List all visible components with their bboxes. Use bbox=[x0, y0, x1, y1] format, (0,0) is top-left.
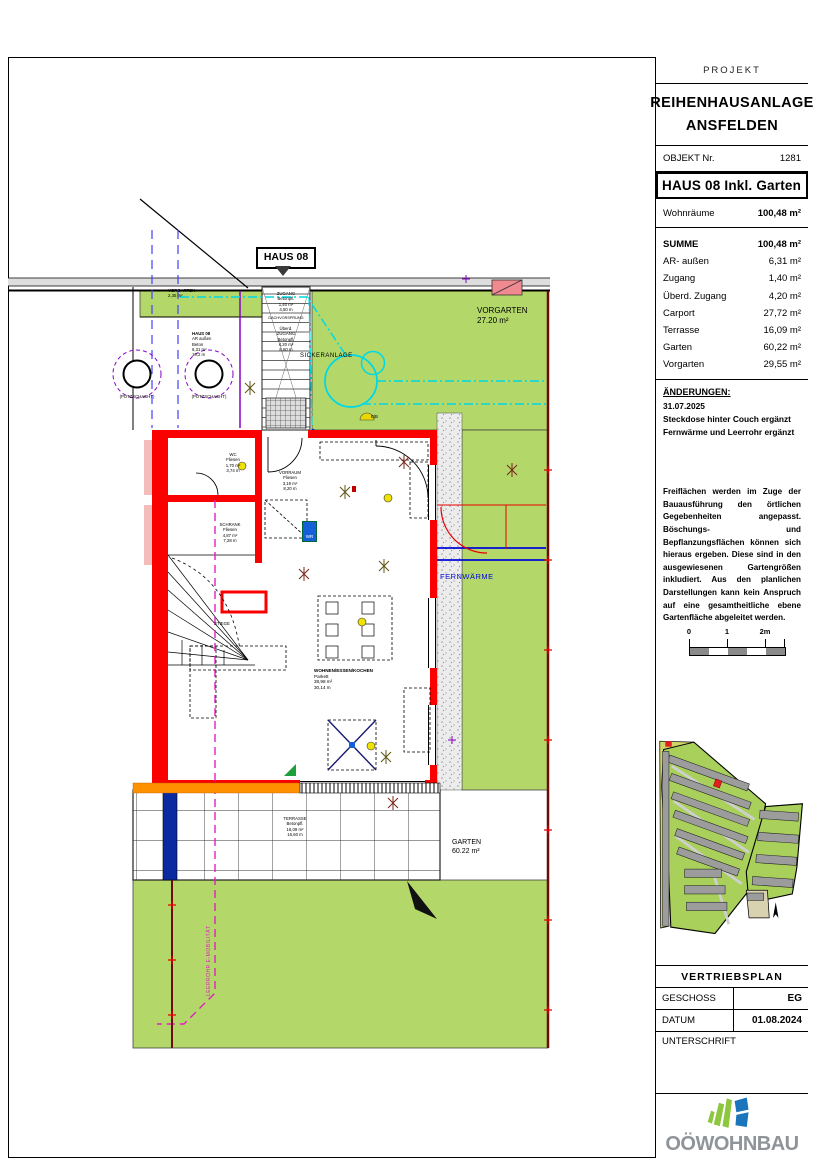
stiege-label: STIEGE bbox=[214, 621, 230, 626]
aenderungen-block: ÄNDERUNGEN: 31.07.2025 Steckdose hinter … bbox=[656, 380, 808, 480]
unterschrift-box: UNTERSCHRIFT bbox=[656, 1032, 808, 1094]
project-name-line1: REIHENHAUSANLAGE bbox=[650, 92, 814, 114]
wohnraeume-label: Wohnräume bbox=[663, 208, 715, 219]
logo-text: OÖWOHNBAU bbox=[665, 1134, 798, 1154]
vorgarten-big-label: VORGARTEN 27.20 m² bbox=[477, 306, 528, 327]
zugang-label: ZUGANG Betonpfl. 1,40 m² 4,50 m bbox=[277, 291, 295, 312]
wr-box: WR bbox=[302, 521, 317, 542]
terrasse-label: TERRASSE Betonpfl. 16,09 m² 16,60 m bbox=[283, 816, 306, 837]
geschoss-row: GESCHOSS EG bbox=[656, 988, 808, 1010]
sickeranlage-label: SICKERANLAGE bbox=[300, 353, 353, 361]
aenderungen-line: Steckdose hinter Couch ergänzt bbox=[663, 413, 801, 426]
gravel-strip bbox=[437, 413, 462, 790]
vorraum-room-label: VORRAUM Fliesen 3,19 m² 8,20 m bbox=[279, 470, 301, 491]
ueberd-zugang-label: Überd. ZUGANG Betonpfl. 4,20 m² 8,60 m bbox=[277, 326, 295, 353]
objekt-value: 1281 bbox=[780, 153, 801, 164]
objekt-row: OBJEKT Nr. 1281 bbox=[656, 146, 808, 172]
logo-mark-icon bbox=[705, 1094, 759, 1134]
site-map-drawing bbox=[657, 724, 807, 959]
fernwaerme-label: FERNWÄRME bbox=[440, 572, 494, 581]
haus-title-box: HAUS 08 Inkl. Garten bbox=[656, 172, 808, 199]
title-block-panel: PROJEKT REIHENHAUSANLAGE ANSFELDEN OBJEK… bbox=[655, 57, 808, 1158]
garten-label: GARTEN 60.22 m² bbox=[452, 838, 481, 857]
site-map-north-arrow-icon bbox=[773, 902, 779, 918]
wohnen-room-label: WOHNEN/ESSEN/KOCHEN Parkett 38,98 m² 30,… bbox=[314, 668, 373, 691]
scale-label-0: 0 bbox=[687, 627, 691, 636]
aenderungen-date: 31.07.2025 bbox=[663, 400, 801, 413]
disclaimer-text: Freiflächen werden im Zuge der Bauausfüh… bbox=[656, 482, 808, 622]
project-name-box: REIHENHAUSANLAGE ANSFELDEN bbox=[656, 84, 808, 146]
facade-strips bbox=[133, 783, 440, 793]
floorplan-drawing bbox=[8, 57, 655, 1160]
wc-room-label: WC Fliesen 1,70 m² 3,74 m bbox=[226, 452, 241, 473]
scale-label-2m: 2m bbox=[760, 627, 771, 636]
aenderungen-heading: ÄNDERUNGEN: bbox=[663, 386, 801, 400]
summe-row: SUMME100,48 m² bbox=[663, 236, 801, 253]
putzschacht-left-label: (PUTZSCHACHT) bbox=[120, 394, 155, 399]
company-logo: OÖWOHNBAU bbox=[656, 1094, 808, 1156]
objekt-label: OBJEKT Nr. bbox=[663, 153, 715, 164]
summe-row: Garten60,22 m² bbox=[663, 339, 801, 356]
site-map bbox=[656, 717, 808, 965]
wohnraeume-row: Wohnräume 100,48 m² bbox=[656, 199, 808, 228]
projekt-header: PROJEKT bbox=[656, 57, 808, 84]
scale-bar: 0 1 2m bbox=[656, 625, 808, 670]
vertriebsplan-box: VERTRIEBSPLAN bbox=[656, 965, 808, 988]
bb-mark: B|B bbox=[371, 414, 378, 419]
summe-row: Überd. Zugang4,20 m² bbox=[663, 288, 801, 305]
datum-value: 01.08.2024 bbox=[734, 1010, 808, 1031]
vertriebsplan-label: VERTRIEBSPLAN bbox=[681, 971, 783, 983]
unterschrift-label: UNTERSCHRIFT bbox=[662, 1036, 736, 1047]
site-map-highlight-small bbox=[665, 741, 671, 747]
haus-08-tag-arrow-icon bbox=[275, 266, 291, 276]
vorgarten-small-label: VORGARTEN 2,35 m² bbox=[168, 288, 195, 299]
schrank-room-label: SCHRANK Fliesen 4,87 m² 7,28 m bbox=[219, 522, 240, 543]
datum-row: DATUM 01.08.2024 bbox=[656, 1010, 808, 1032]
utility-box bbox=[492, 280, 522, 295]
ar-aussen-label: HAUS 08 AR außen Beton 6,31 m² 10,2 m bbox=[192, 331, 211, 358]
scale-label-1: 1 bbox=[725, 627, 729, 636]
summe-row: Carport27,72 m² bbox=[663, 305, 801, 322]
summe-row: AR- außen6,31 m² bbox=[663, 253, 801, 270]
summe-row: Terrasse16,09 m² bbox=[663, 322, 801, 339]
putzschacht-manholes bbox=[113, 350, 233, 398]
datum-label: DATUM bbox=[656, 1010, 734, 1031]
haus-title: HAUS 08 Inkl. Garten bbox=[662, 178, 801, 193]
geschoss-value: EG bbox=[734, 988, 808, 1009]
putzschacht-right-label: (PUTZSCHACHT) bbox=[192, 394, 227, 399]
plan-sheet-page: HAUS 08 VORGARTEN 2,35 m² ZUGANG Betonpf… bbox=[0, 0, 818, 1166]
wohnraeume-value: 100,48 m² bbox=[758, 208, 801, 219]
summe-row: Vorgarten29,55 m² bbox=[663, 356, 801, 373]
project-name-line2: ANSFELDEN bbox=[686, 115, 778, 137]
summe-row: Zugang1,40 m² bbox=[663, 270, 801, 287]
summe-table: SUMME100,48 m² AR- außen6,31 m² Zugang1,… bbox=[656, 228, 808, 380]
geschoss-label: GESCHOSS bbox=[656, 988, 734, 1009]
dachvorsprung-label: DACHVORSPRUNG bbox=[268, 316, 303, 321]
aenderungen-line: Fernwärme und Leerrohr ergänzt bbox=[663, 426, 801, 439]
projekt-label: PROJEKT bbox=[703, 65, 761, 76]
leerrohr-label: LEERROHR E-MOBILITÄT bbox=[206, 925, 212, 996]
